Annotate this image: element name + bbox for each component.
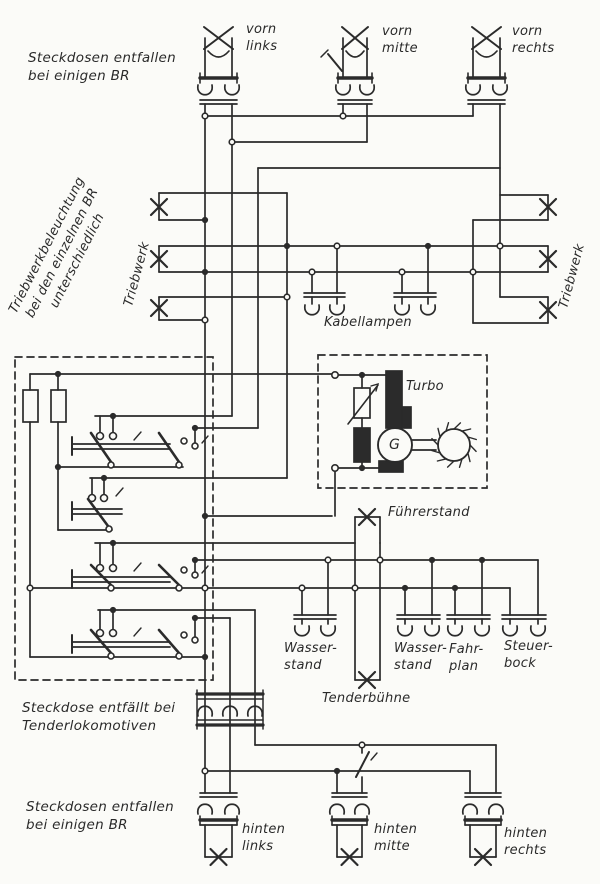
schematic-page: Steckdosen entfallen bei einigen BR vorn… bbox=[0, 0, 600, 884]
fuehrerstand-lamp bbox=[355, 509, 380, 543]
label-steuerbock: Steuer- bock bbox=[504, 639, 553, 673]
triebwerk-lamps bbox=[151, 199, 556, 318]
label-turbo: Turbo bbox=[406, 379, 444, 396]
note-bottom-left: Steckdosen entfallen bei einigen BR bbox=[26, 799, 174, 834]
label-vorn-links: vorn links bbox=[246, 22, 277, 56]
label-generator-g: G bbox=[389, 436, 400, 454]
front-lamp-units bbox=[198, 27, 507, 104]
note-top-left: Steckdosen entfallen bei einigen BR bbox=[28, 50, 176, 85]
label-fuehrerstand: Führerstand bbox=[388, 505, 470, 522]
label-tenderbuehne: Tenderbühne bbox=[322, 691, 410, 708]
label-wasserstand-2: Wasser- stand bbox=[394, 641, 447, 675]
cab-sockets bbox=[294, 560, 546, 636]
kabellampen-sockets bbox=[304, 246, 436, 315]
label-hinten-mitte: hinten mitte bbox=[374, 822, 417, 856]
label-wasserstand-1: Wasser- stand bbox=[284, 641, 337, 675]
wiring-diagram-canvas bbox=[0, 0, 600, 884]
label-fahrplan: Fahr- plan bbox=[449, 642, 484, 676]
label-hinten-links: hinten links bbox=[242, 822, 285, 856]
switchboard bbox=[23, 390, 208, 659]
label-kabellampen: Kabellampen bbox=[324, 315, 412, 332]
label-vorn-rechts: vorn rechts bbox=[512, 24, 554, 58]
label-hinten-rechts: hinten rechts bbox=[504, 826, 547, 860]
note-tenderlokomotiven: Steckdose entfällt bei Tenderlokomotiven bbox=[22, 700, 175, 735]
tenderbuehne-lamp bbox=[355, 672, 380, 688]
label-vorn-mitte: vorn mitte bbox=[382, 24, 418, 58]
